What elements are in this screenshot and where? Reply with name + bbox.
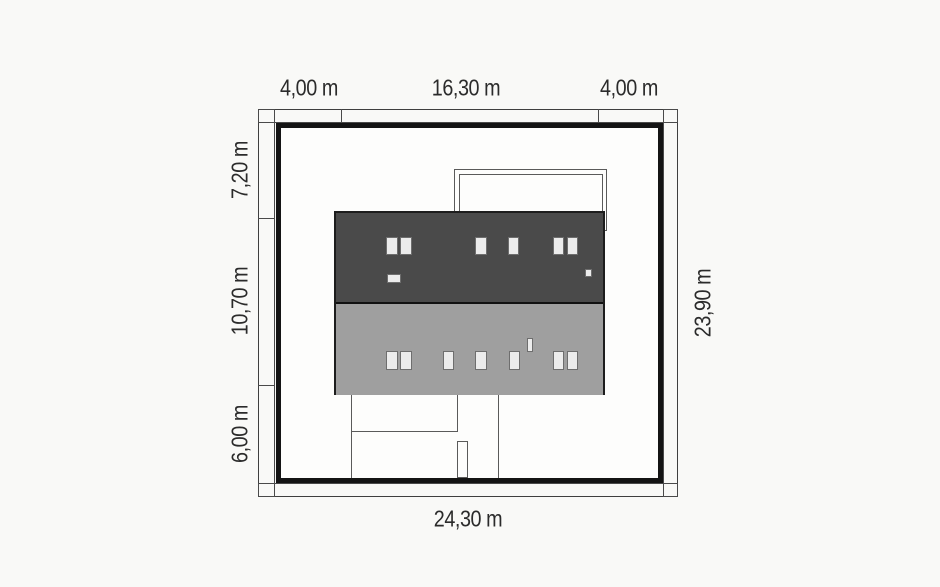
- dimension-tick-top-1: [341, 109, 342, 123]
- dim-label-top-right: 4,00 m: [600, 75, 658, 102]
- dimension-tick-left-2: [258, 385, 275, 386]
- band-corner-bottom-left: [258, 483, 275, 497]
- dim-label-bottom-total: 24,30 m: [434, 506, 502, 533]
- dim-label-left-bottom: 6,00 m: [227, 405, 254, 463]
- dimension-tick-left-1: [258, 218, 275, 219]
- dimension-tick-top-2: [598, 109, 599, 123]
- band-corner-bottom-right: [663, 483, 678, 497]
- plot-boundary: [276, 123, 663, 483]
- dim-label-left-middle: 10,70 m: [227, 267, 254, 335]
- band-corner-top-right: [663, 109, 678, 123]
- band-corner-top-left: [258, 109, 275, 123]
- dim-label-top-left: 4,00 m: [280, 75, 338, 102]
- dim-label-left-top: 7,20 m: [227, 141, 254, 199]
- site-plan-diagram: 4,00 m 16,30 m 4,00 m 7,20 m 10,70 m 6,0…: [0, 0, 940, 587]
- dim-label-top-center: 16,30 m: [432, 75, 500, 102]
- dim-label-right-total: 23,90 m: [690, 269, 717, 337]
